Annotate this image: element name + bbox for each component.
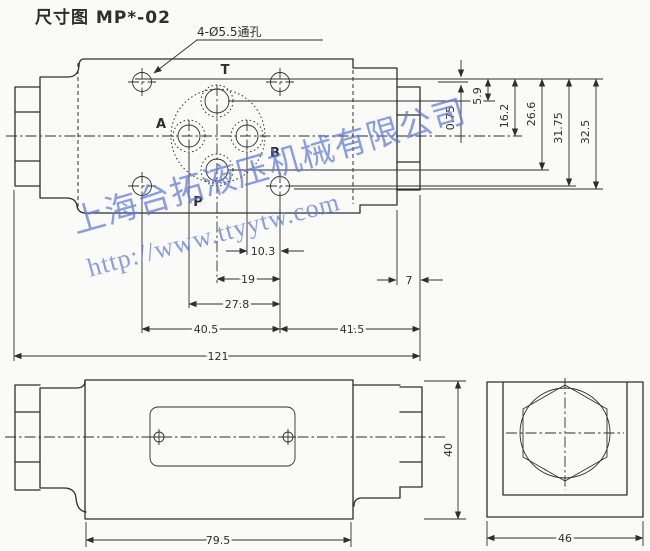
bolt-holes xyxy=(128,68,294,200)
side-view: 40 79.5 xyxy=(5,380,466,547)
end-view-centerlines xyxy=(506,378,624,490)
technical-drawing-svg: 尺寸图 MP*-02 xyxy=(0,0,650,551)
dim-31-75-label: 31.75 xyxy=(552,112,565,144)
dim-121-label: 121 xyxy=(208,350,229,363)
dim-41-5-label: 41.5 xyxy=(340,323,365,336)
dim-46-label: 46 xyxy=(558,532,572,545)
dim-7-label: 7 xyxy=(406,274,413,287)
end-view: 46 xyxy=(487,378,643,546)
dim-27-8-label: 27.8 xyxy=(225,298,250,311)
side-view-body-outline xyxy=(85,380,353,519)
port-label-t: T xyxy=(221,63,230,78)
top-view-right-hex-plug xyxy=(397,87,420,190)
dim-26-6-label: 26.6 xyxy=(525,102,538,127)
dim-5-9-label: 5.9 xyxy=(471,87,484,105)
side-view-left-step xyxy=(40,381,86,512)
dim-16-2-label: 16.2 xyxy=(498,104,511,129)
callout-leader-arrow xyxy=(154,40,197,73)
vertical-dimensions: 0.75 5.9 16.2 26.6 31.75 32.5 xyxy=(135,60,603,189)
dim-19-label: 19 xyxy=(241,273,255,286)
bolt-hole-callout: 4-Ø5.5通孔 xyxy=(197,25,262,39)
dim-40-label: 40 xyxy=(442,443,455,457)
port-label-a: A xyxy=(156,117,166,132)
side-view-right-step xyxy=(353,385,400,506)
dimension-drawing-page: 尺寸图 MP*-02 xyxy=(0,0,650,551)
dim-32-5-label: 32.5 xyxy=(579,120,592,145)
port-label-b: B xyxy=(270,146,280,161)
drawing-title: 尺寸图 MP*-02 xyxy=(35,7,171,28)
dim-10-3-label: 10.3 xyxy=(251,245,276,258)
side-view-left-hex xyxy=(15,385,40,490)
dim-79-5-label: 79.5 xyxy=(206,534,231,547)
bolt-hole-crosshairs xyxy=(128,68,294,200)
port-label-p: P xyxy=(193,195,203,210)
dim-40-5-label: 40.5 xyxy=(194,323,219,336)
nameplate xyxy=(150,407,295,466)
top-view-left-hex-plug xyxy=(15,87,40,186)
valve-ports xyxy=(171,85,265,186)
dim-0-75-label: 0.75 xyxy=(444,106,457,131)
